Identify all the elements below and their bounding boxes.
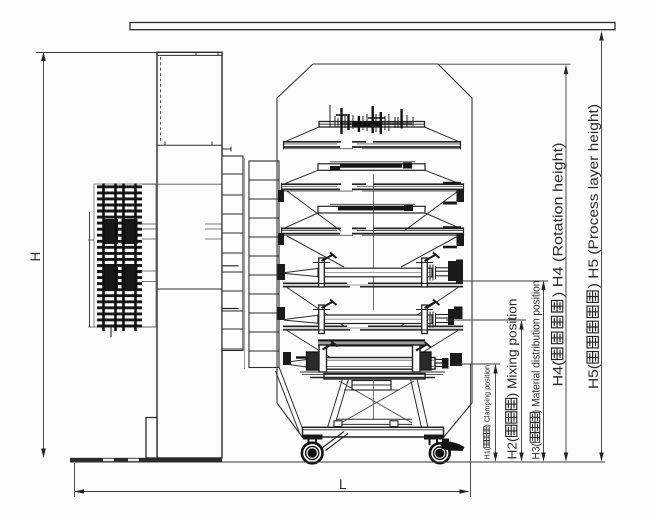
svg-text:) H4 (Rotation height): ) H4 (Rotation height) (551, 143, 566, 298)
svg-text:) Clamping position: ) Clamping position (483, 365, 492, 427)
svg-text:H5(: H5( (586, 363, 601, 389)
svg-text:H: H (28, 252, 43, 262)
svg-text:) Material distribution positi: ) Material distribution position (531, 281, 543, 414)
svg-text:) Mixing position: ) Mixing position (505, 299, 520, 398)
svg-text:L: L (339, 477, 347, 492)
svg-text:H4(: H4( (551, 360, 566, 387)
svg-text:H1(: H1( (483, 447, 492, 459)
svg-text:H3(: H3( (531, 443, 543, 460)
svg-text:H2(: H2( (505, 437, 520, 460)
svg-text:) H5 (Process layer height): ) H5 (Process layer height) (586, 104, 601, 288)
